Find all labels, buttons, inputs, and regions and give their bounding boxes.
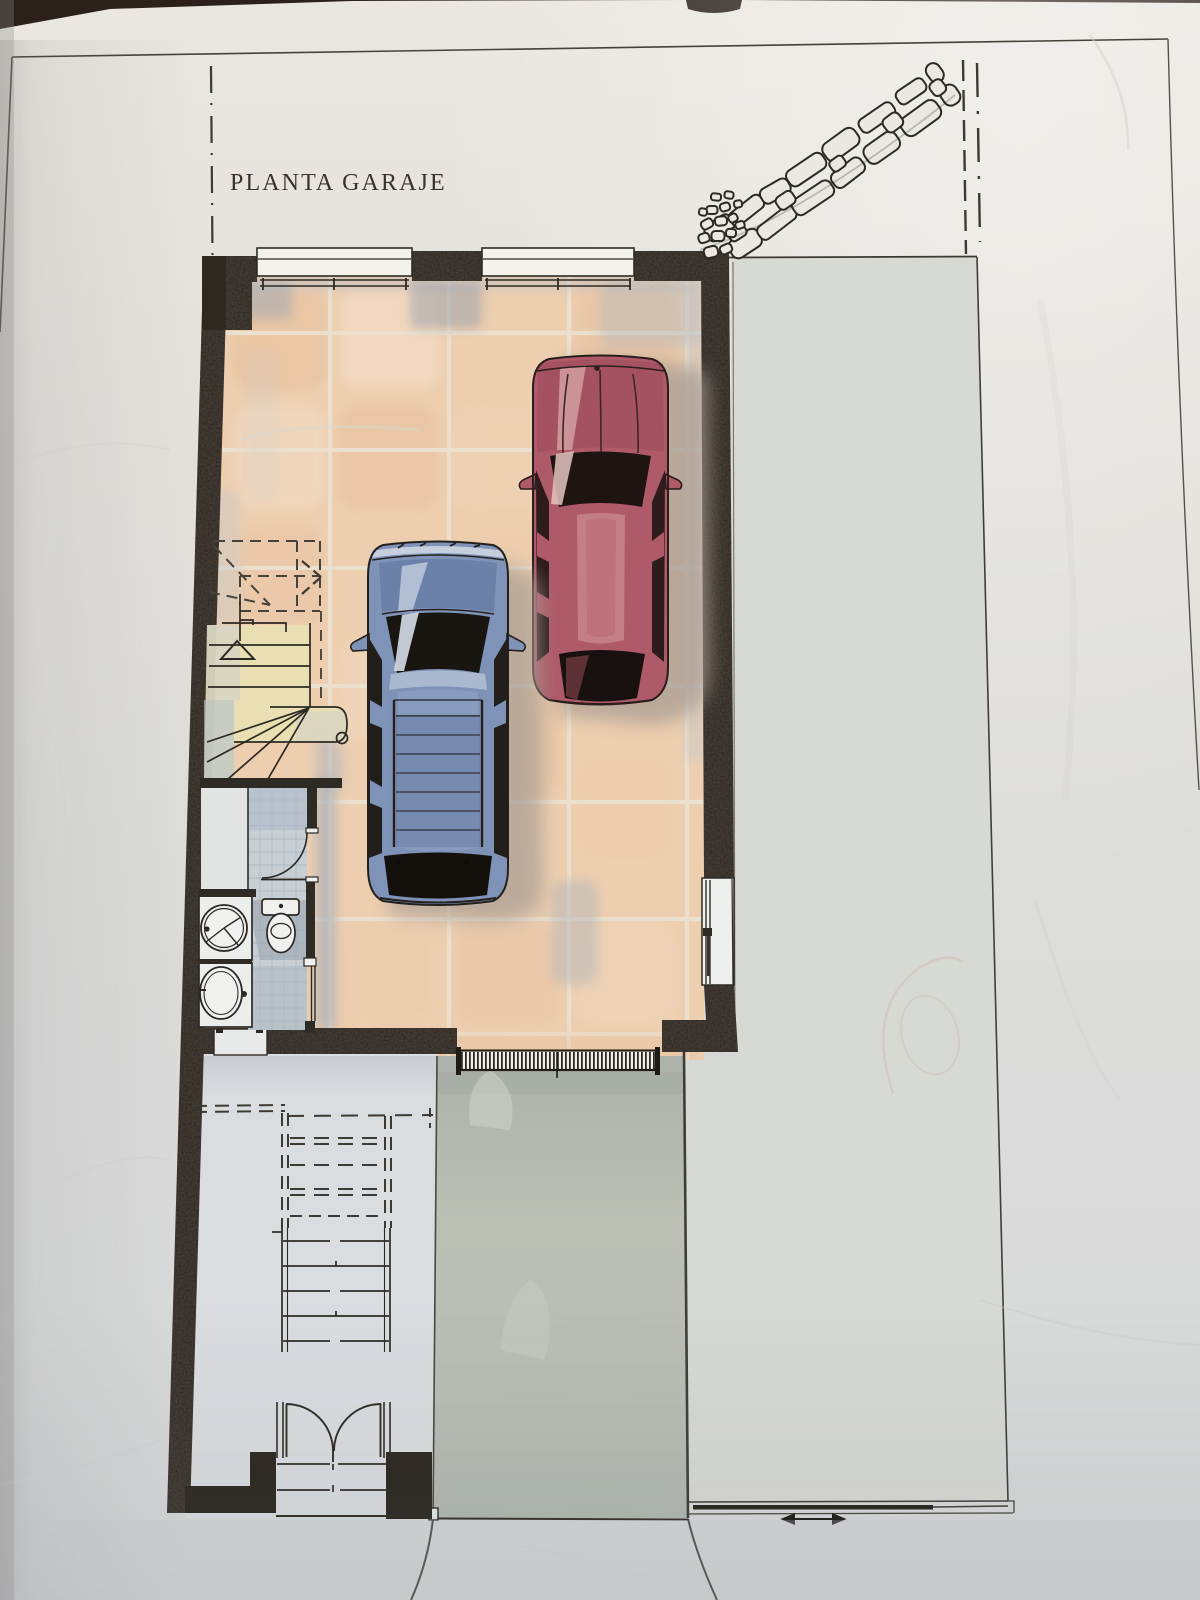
- svg-text:PLANTA GARAJE: PLANTA GARAJE: [230, 170, 447, 196]
